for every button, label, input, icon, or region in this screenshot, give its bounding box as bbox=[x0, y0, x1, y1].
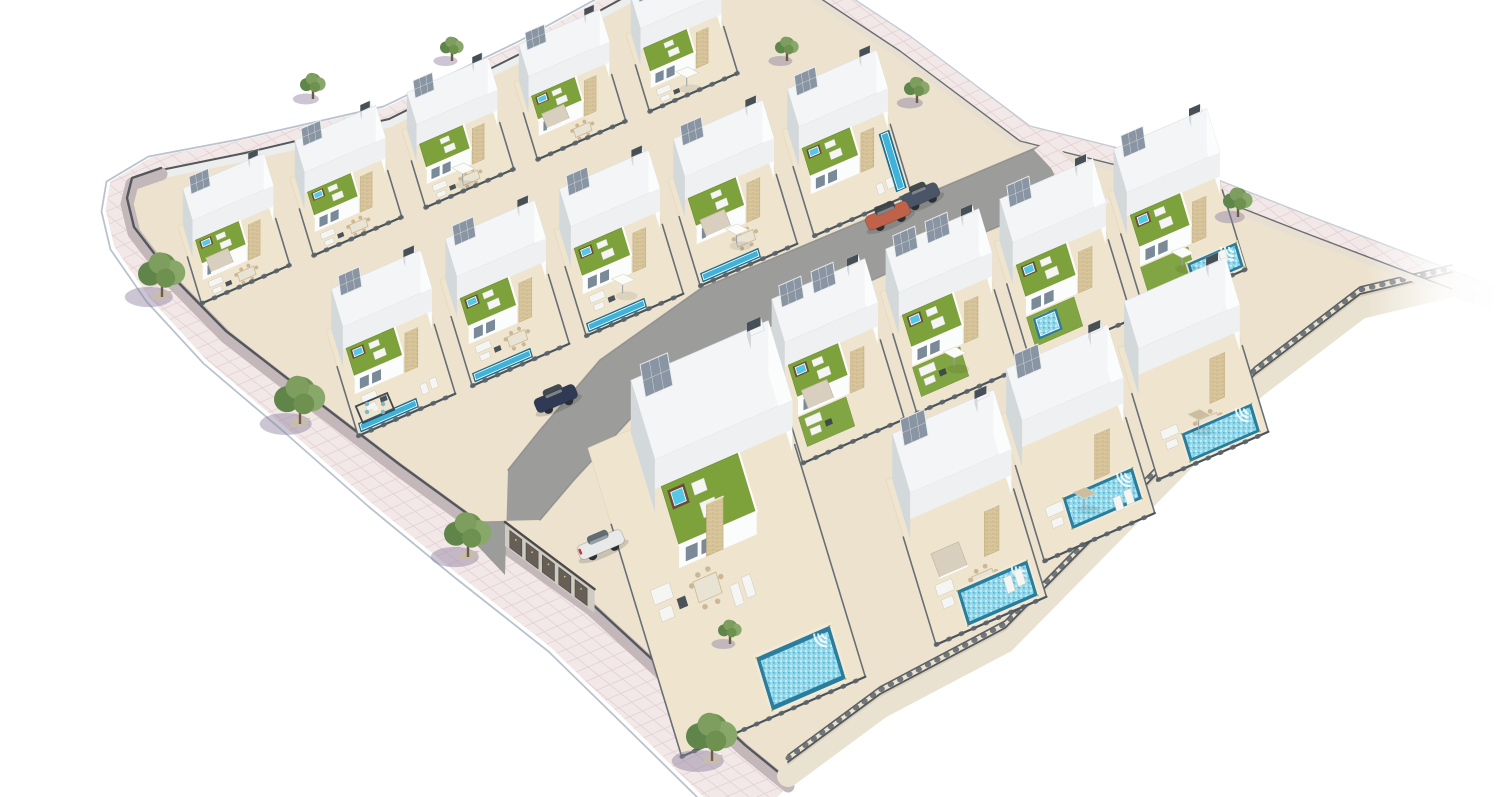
render-viewport bbox=[0, 0, 1500, 797]
tree-5 bbox=[293, 73, 326, 105]
site-plan-render bbox=[0, 0, 1500, 797]
tree-6 bbox=[433, 37, 463, 66]
edge-fade-overlay bbox=[1365, 0, 1500, 797]
